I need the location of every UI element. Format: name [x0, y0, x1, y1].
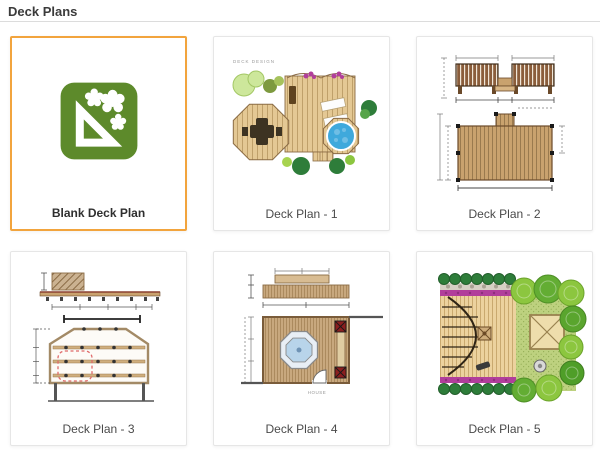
blank-deck-plan-icon — [12, 42, 185, 200]
template-label: Deck Plan - 2 — [417, 207, 592, 221]
deck-design-label: DECK DESIGN — [233, 59, 275, 64]
page-title: Deck Plans — [0, 0, 600, 22]
deck-plan-5-thumbnail — [417, 257, 592, 415]
template-card-blank-deck-plan[interactable]: Blank Deck Plan — [10, 36, 187, 231]
template-gallery: Blank Deck Plan DECK DESIGN — [0, 22, 600, 446]
deck-plan-2-thumbnail — [417, 42, 592, 200]
deck-plan-3-thumbnail — [11, 257, 186, 415]
template-label: Deck Plan - 5 — [417, 422, 592, 436]
template-label: Deck Plan - 1 — [214, 207, 389, 221]
template-card-deck-plan-5[interactable]: Deck Plan - 5 — [416, 251, 593, 446]
template-card-deck-plan-4[interactable]: HOUSE Deck Plan - 4 — [213, 251, 390, 446]
deck-plan-1-thumbnail: DECK DESIGN — [214, 42, 389, 200]
template-card-deck-plan-3[interactable]: Deck Plan - 3 — [10, 251, 187, 446]
template-label: Deck Plan - 4 — [214, 422, 389, 436]
template-label: Blank Deck Plan — [12, 206, 185, 220]
set-square-flowers-icon — [59, 81, 139, 161]
deck-plan-4-thumbnail: HOUSE — [214, 257, 389, 415]
template-card-deck-plan-1[interactable]: DECK DESIGN — [213, 36, 390, 231]
template-label: Deck Plan - 3 — [11, 422, 186, 436]
house-label: HOUSE — [307, 390, 326, 395]
template-card-deck-plan-2[interactable]: Deck Plan - 2 — [416, 36, 593, 231]
